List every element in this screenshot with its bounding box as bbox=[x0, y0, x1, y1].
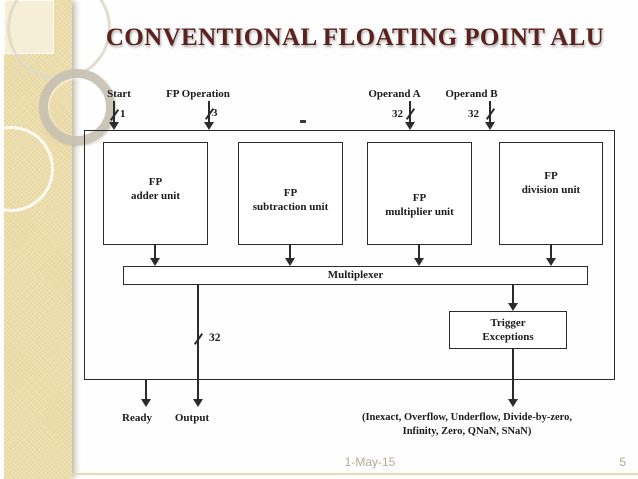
arrow-down-icon bbox=[285, 258, 295, 266]
bus-width-start: 1 bbox=[120, 107, 132, 121]
input-label-start: Start bbox=[98, 87, 140, 101]
arrow-division-to-mux bbox=[546, 245, 556, 266]
bus-width-output: 32 bbox=[209, 331, 229, 346]
stray-scan-mark bbox=[300, 120, 306, 123]
exceptions-text-line1: (Inexact, Overflow, Underflow, Divide-by… bbox=[348, 411, 586, 425]
footer-date: 1-May-15 bbox=[330, 455, 410, 469]
unit-box-fp-subtraction: FP subtraction unit bbox=[238, 142, 343, 245]
slide: CONVENTIONAL FLOATING POINT ALU Start 1 … bbox=[0, 0, 638, 479]
arrow-ready bbox=[141, 380, 151, 407]
arrow-trigger-to-exceptions-output bbox=[508, 349, 518, 407]
arrow-subtraction-to-mux bbox=[285, 245, 295, 266]
arrow-down-icon bbox=[485, 122, 495, 130]
unit-label: division unit bbox=[522, 183, 580, 197]
arrow-down-icon bbox=[546, 258, 556, 266]
multiplexer-box: Multiplexer bbox=[123, 266, 588, 285]
unit-label: FP bbox=[149, 175, 162, 189]
bus-width-operand-a: 32 bbox=[387, 107, 403, 121]
unit-box-fp-multiplier: FP multiplier unit bbox=[367, 142, 472, 245]
unit-label: subtraction unit bbox=[253, 200, 329, 214]
input-label-operand-a: Operand A bbox=[362, 87, 427, 101]
page-title: CONVENTIONAL FLOATING POINT ALU bbox=[72, 24, 638, 52]
unit-box-fp-division: FP division unit bbox=[499, 142, 603, 245]
unit-label: FP bbox=[413, 191, 426, 205]
multiplexer-label: Multiplexer bbox=[328, 268, 384, 282]
arrow-down-icon bbox=[508, 303, 518, 311]
unit-box-fp-adder: FP adder unit bbox=[103, 142, 208, 245]
input-label-operand-b: Operand B bbox=[444, 87, 499, 101]
trigger-exceptions-box: Trigger Exceptions bbox=[449, 311, 567, 349]
exceptions-text-line2: Infinity, Zero, QNaN, SNaN) bbox=[348, 425, 586, 439]
arrow-down-icon bbox=[109, 122, 119, 130]
arrow-down-icon bbox=[193, 399, 203, 407]
arrow-multiplier-to-mux bbox=[414, 245, 424, 266]
output-label-ready: Ready bbox=[114, 411, 160, 425]
arrow-mux-to-output bbox=[193, 284, 203, 407]
arrow-down-icon bbox=[508, 399, 518, 407]
arrow-mux-to-trigger bbox=[508, 285, 518, 311]
footer-divider bbox=[72, 473, 638, 475]
input-label-fp-operation: FP Operation bbox=[158, 87, 238, 101]
unit-label: FP bbox=[544, 169, 557, 183]
trigger-label: Trigger bbox=[490, 316, 525, 330]
unit-label: multiplier unit bbox=[385, 205, 454, 219]
unit-label: FP bbox=[284, 186, 297, 200]
bus-width-operand-b: 32 bbox=[463, 107, 479, 121]
arrow-down-icon bbox=[150, 258, 160, 266]
arrow-down-icon bbox=[405, 122, 415, 130]
arrow-adder-to-mux bbox=[150, 245, 160, 266]
arrow-down-icon bbox=[204, 122, 214, 130]
footer-page-number: 5 bbox=[606, 455, 626, 469]
unit-label: adder unit bbox=[131, 189, 180, 203]
trigger-label: Exceptions bbox=[482, 330, 533, 344]
arrow-down-icon bbox=[141, 399, 151, 407]
bus-width-fp-operation: 3 bbox=[212, 106, 224, 120]
arrow-down-icon bbox=[414, 258, 424, 266]
output-label-output: Output bbox=[167, 411, 217, 425]
